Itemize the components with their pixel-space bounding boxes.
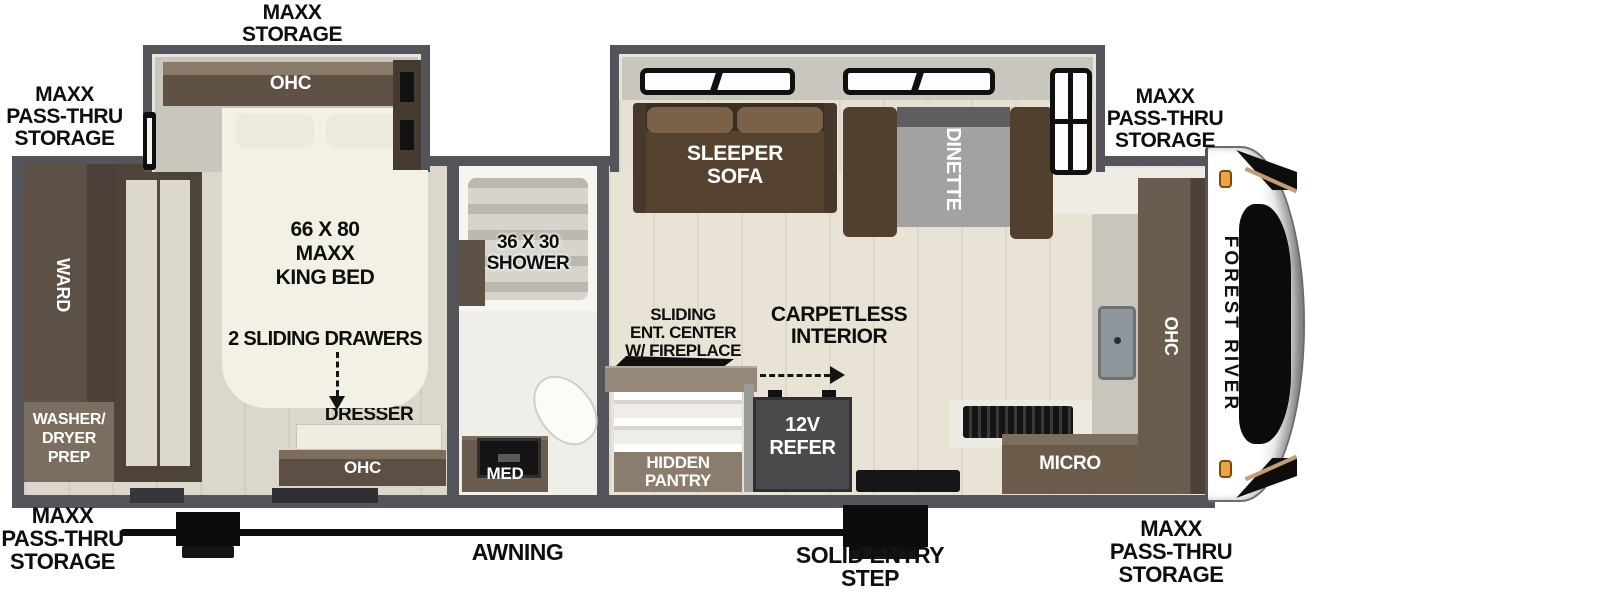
bedroom-slide-ohc: OHC	[163, 62, 418, 106]
bedroom-slide-window	[143, 112, 156, 170]
front-cap: FOREST RIVER	[1205, 146, 1305, 502]
window-divider	[910, 68, 926, 95]
maxx-passthru-top-right-label: MAXX PASS-THRU STORAGE	[1098, 86, 1232, 152]
pantry-interior	[614, 392, 742, 454]
washer-dryer-label: WASHER/ DRYER PREP	[24, 410, 114, 467]
cabinet-panel	[400, 72, 414, 102]
sofa-cushion	[647, 107, 733, 133]
carpetless-label: CARPETLESS INTERIOR	[760, 304, 918, 348]
maxx-passthru-bottom-right-label: MAXX PASS-THRU STORAGE	[1103, 517, 1239, 586]
cabinet-panel	[400, 120, 414, 150]
entry-arrow-dash	[760, 374, 830, 377]
window-divider	[709, 68, 725, 95]
stabilizer-step	[176, 512, 240, 546]
sofa-cushion	[737, 107, 823, 133]
entry-arrow-head	[830, 366, 854, 384]
wall-bedroom-bath	[447, 156, 459, 508]
dinette-bench-left	[843, 107, 897, 237]
ent-center-label: SLIDING ENT. CENTER W/ FIREPLACE	[605, 306, 761, 360]
solid-entry-step	[843, 505, 928, 547]
slide-ohc-label: OHC	[270, 73, 311, 95]
solid-entry-step-label: SOLID ENTRY STEP	[795, 544, 945, 590]
mirrored-wardrobe	[114, 164, 202, 482]
doorside-window-band	[272, 488, 378, 503]
slide-window-right	[843, 68, 995, 95]
sleeper-sofa-label: SLEEPER SOFA	[633, 142, 837, 188]
maxx-storage-label: MAXX STORAGE	[192, 2, 392, 46]
clearance-light-top	[1219, 170, 1232, 188]
dresser	[296, 424, 442, 450]
maxx-passthru-top-left-label: MAXX PASS-THRU STORAGE	[2, 84, 127, 150]
window-divider	[1068, 73, 1073, 170]
floorplan-diagram: WARD WASHER/ DRYER PREP DRESSER OHC 36 X…	[0, 0, 1600, 601]
ward-label: WARD	[51, 225, 75, 345]
hidden-pantry-label: HIDDEN PANTRY	[614, 454, 742, 490]
shower-label: 36 X 30 SHOWER	[459, 232, 597, 274]
slide-side-cabinet	[393, 60, 421, 176]
sink-detail	[498, 454, 520, 462]
king-bed-label: 66 X 80 MAXX KING BED	[222, 218, 428, 290]
living-slideout: SLEEPER SOFA DINETTE	[610, 45, 1105, 172]
clearance-light-bottom	[1219, 460, 1232, 478]
doorside-window-band	[130, 488, 184, 503]
bed-head	[222, 108, 420, 172]
stabilizer-step-base	[182, 546, 234, 558]
dinette-bench-right	[1010, 107, 1053, 239]
bedroom-ohc-label: OHC	[344, 458, 381, 478]
microwave-cabinet: MICRO	[1002, 434, 1138, 494]
window-pane	[147, 118, 152, 164]
drawers-arrow-head	[329, 396, 345, 418]
awning-line	[120, 529, 928, 536]
maxx-passthru-bottom-left-label: MAXX PASS-THRU STORAGE	[0, 504, 125, 573]
awning-label: AWNING	[440, 541, 595, 564]
windshield-decal	[1239, 204, 1291, 444]
bedroom-slideout: OHC	[143, 45, 430, 172]
ent-center-counter	[605, 366, 757, 392]
mirror-seam	[157, 180, 160, 466]
sliding-drawers-label: 2 SLIDING DRAWERS	[215, 328, 435, 351]
micro-label: MICRO	[1039, 453, 1101, 475]
kitchen-ohc-label: OHC	[1159, 276, 1183, 396]
refer-label: 12V REFER	[753, 414, 852, 460]
pillow	[236, 114, 314, 148]
entry-door-threshold	[856, 470, 960, 492]
med-label: MED	[462, 464, 548, 484]
kitchen-sink	[1098, 306, 1136, 380]
bedroom-ohc-cabinet: OHC	[279, 450, 446, 486]
slide-window-left	[640, 68, 795, 95]
slide-end-window	[1050, 68, 1092, 175]
dinette-label: DINETTE	[941, 109, 965, 229]
faucet-dot	[1114, 337, 1121, 344]
brand-label: FOREST RIVER	[1219, 204, 1241, 444]
drawers-arrow-dash	[336, 352, 339, 396]
